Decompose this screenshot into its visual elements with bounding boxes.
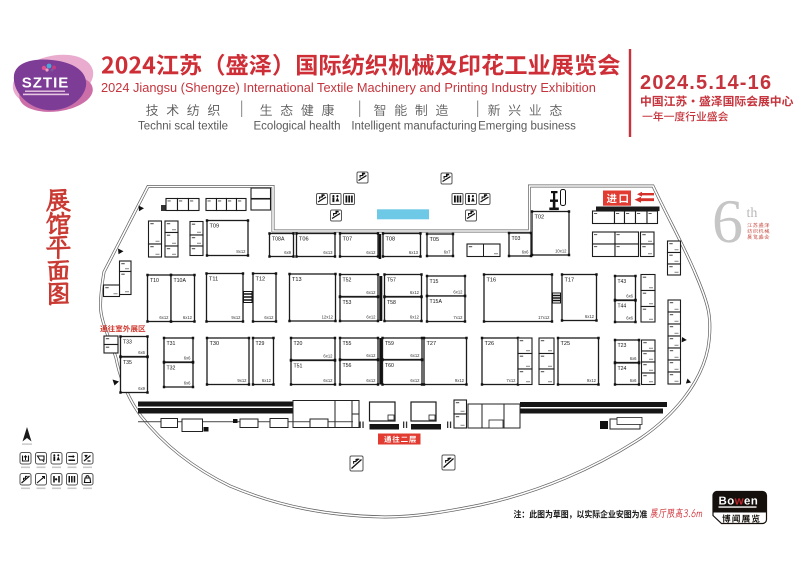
svg-text:T31: T31 <box>167 341 176 347</box>
svg-text:T09: T09 <box>210 224 220 230</box>
svg-text:Ecological health: Ecological health <box>254 121 341 133</box>
svg-text:T58: T58 <box>387 300 396 306</box>
svg-text:T07: T07 <box>343 237 353 243</box>
svg-text:T29: T29 <box>256 341 265 347</box>
svg-text:T16: T16 <box>487 278 497 284</box>
svg-text:6x6: 6x6 <box>630 356 637 361</box>
svg-text:T25: T25 <box>561 341 571 347</box>
svg-text:9x12: 9x12 <box>455 378 465 383</box>
svg-text:6x12: 6x12 <box>366 290 376 295</box>
svg-text:6x12: 6x12 <box>366 378 376 383</box>
svg-text:T33: T33 <box>123 340 132 346</box>
svg-text:T32: T32 <box>167 366 176 372</box>
svg-text:6x12: 6x12 <box>585 314 595 319</box>
svg-text:6x12: 6x12 <box>366 353 376 358</box>
svg-text:17x12: 17x12 <box>538 315 550 320</box>
svg-text:T15: T15 <box>430 279 439 285</box>
svg-text:6x7: 6x7 <box>444 250 451 255</box>
svg-text:9x12: 9x12 <box>587 378 597 383</box>
svg-text:6x12: 6x12 <box>410 353 420 358</box>
svg-text:T60: T60 <box>385 363 394 369</box>
svg-text:2024.5.14-16: 2024.5.14-16 <box>640 72 772 94</box>
svg-text:7x12: 7x12 <box>453 315 463 320</box>
svg-text:6x12: 6x12 <box>159 315 169 320</box>
svg-text:6x13: 6x13 <box>409 250 419 255</box>
svg-text:6x6: 6x6 <box>630 378 637 383</box>
svg-text:T03: T03 <box>512 236 521 242</box>
svg-text:6x12: 6x12 <box>366 250 376 255</box>
svg-text:6x12: 6x12 <box>264 315 274 320</box>
svg-text:6x6: 6x6 <box>626 316 633 321</box>
svg-text:8x12: 8x12 <box>236 249 246 254</box>
svg-text:6x12: 6x12 <box>453 290 463 295</box>
svg-text:T52: T52 <box>343 278 352 284</box>
svg-text:T10: T10 <box>150 278 159 284</box>
svg-text:Intelligent manufacturing: Intelligent manufacturing <box>351 121 476 133</box>
svg-text:2024 Jiangsu (Shengze) Interna: 2024 Jiangsu (Shengze) International Tex… <box>101 80 596 95</box>
svg-text:T12: T12 <box>256 277 266 283</box>
svg-text:T53: T53 <box>343 300 352 306</box>
svg-text:T56: T56 <box>343 363 352 369</box>
svg-text:6x12: 6x12 <box>323 354 333 359</box>
svg-text:6x9: 6x9 <box>284 250 291 255</box>
svg-text:6x12: 6x12 <box>183 315 193 320</box>
svg-text:T59: T59 <box>385 341 394 347</box>
svg-text:T08: T08 <box>386 237 396 243</box>
svg-text:6x6: 6x6 <box>522 250 529 255</box>
svg-text:T23: T23 <box>618 343 627 349</box>
svg-text:9x12: 9x12 <box>231 315 241 320</box>
svg-text:T35: T35 <box>123 360 132 366</box>
svg-text:T17: T17 <box>565 278 575 284</box>
svg-text:T55: T55 <box>343 341 352 347</box>
svg-text:6x6: 6x6 <box>184 381 191 386</box>
svg-text:T13: T13 <box>292 277 302 283</box>
svg-text:6x9: 6x9 <box>138 386 145 391</box>
svg-text:6x6: 6x6 <box>138 350 145 355</box>
svg-text:T02: T02 <box>535 215 545 221</box>
svg-text:6x12: 6x12 <box>410 378 420 383</box>
svg-text:T51: T51 <box>294 364 303 370</box>
svg-text:6x12: 6x12 <box>366 315 376 320</box>
svg-text:6x6: 6x6 <box>184 356 191 361</box>
svg-text:6x12: 6x12 <box>262 378 272 383</box>
svg-text:12x12: 12x12 <box>322 315 334 320</box>
svg-text:T57: T57 <box>387 278 396 284</box>
svg-text:T30: T30 <box>210 341 220 347</box>
svg-text:SZTIE: SZTIE <box>22 75 70 92</box>
svg-text:T10A: T10A <box>174 278 187 284</box>
svg-text:T11: T11 <box>209 277 218 283</box>
svg-text:T20: T20 <box>294 341 303 347</box>
svg-text:T27: T27 <box>427 341 437 347</box>
svg-text:6x6: 6x6 <box>626 294 633 299</box>
svg-text:T15A: T15A <box>430 299 443 305</box>
svg-text:T05: T05 <box>430 237 440 243</box>
svg-text:T26: T26 <box>485 341 495 347</box>
svg-text:6x13: 6x13 <box>323 250 333 255</box>
svg-text:6x12: 6x12 <box>410 290 420 295</box>
svg-text:6x12: 6x12 <box>410 315 420 320</box>
svg-text:T44: T44 <box>618 304 627 310</box>
svg-text:10x12: 10x12 <box>555 249 567 254</box>
svg-text:T08A: T08A <box>272 237 285 243</box>
svg-text:Emerging business: Emerging business <box>478 121 576 133</box>
svg-text:Techni scal textile: Techni scal textile <box>138 121 228 133</box>
svg-text:T06: T06 <box>299 237 309 243</box>
svg-text:6x12: 6x12 <box>323 378 333 383</box>
svg-text:9x12: 9x12 <box>237 378 247 383</box>
svg-text:T24: T24 <box>618 366 627 372</box>
svg-text:7x12: 7x12 <box>506 378 516 383</box>
svg-text:T43: T43 <box>618 279 627 285</box>
